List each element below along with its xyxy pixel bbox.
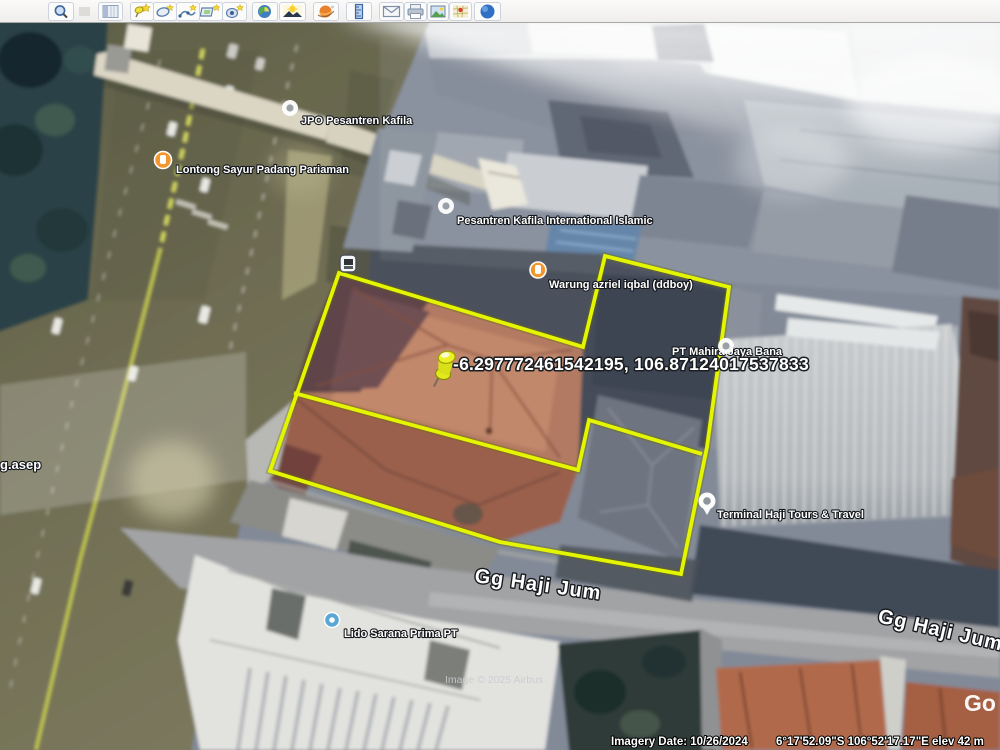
- svg-text:Pesantren Kafila International: Pesantren Kafila International Islamic: [457, 215, 653, 227]
- svg-text:Image © 2025 Airbus: Image © 2025 Airbus: [445, 674, 543, 686]
- svg-text:Go: Go: [964, 690, 996, 716]
- svg-text:g.asep: g.asep: [0, 457, 41, 472]
- svg-text:JPO Pesantren Kafila: JPO Pesantren Kafila: [301, 115, 413, 127]
- svg-text:Terminal Haji Tours & Travel: Terminal Haji Tours & Travel: [717, 509, 864, 521]
- svg-text:6°17'52.09"S 106°52'17.17"E: 6°17'52.09"S 106°52'17.17"E elev 42 m: [776, 736, 984, 748]
- svg-text:Warung azriel iqbal (ddboy): Warung azriel iqbal (ddboy): [549, 279, 693, 291]
- svg-text:Lido Sarana Prima PT: Lido Sarana Prima PT: [344, 628, 458, 640]
- svg-text:-6.297772461542195, 106.871240: -6.297772461542195, 106.87124017537833: [453, 354, 809, 374]
- svg-text:Lontong Sayur Padang Pariaman: Lontong Sayur Padang Pariaman: [176, 164, 349, 176]
- svg-text:Imagery Date: 10/26/2024: Imagery Date: 10/26/2024: [611, 736, 748, 748]
